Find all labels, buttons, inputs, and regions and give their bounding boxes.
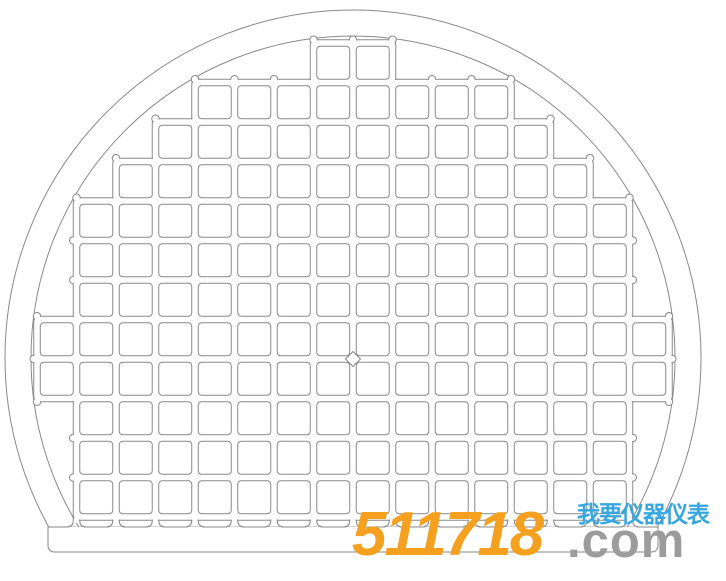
wafer-grid-drawing [0,0,726,581]
wafer-mask-diagram-page: 511718 .com 我要仪器仪表 [0,0,726,581]
watermark-number: 511718 [352,504,542,566]
watermark-slogan: 我要仪器仪表 [577,503,709,526]
